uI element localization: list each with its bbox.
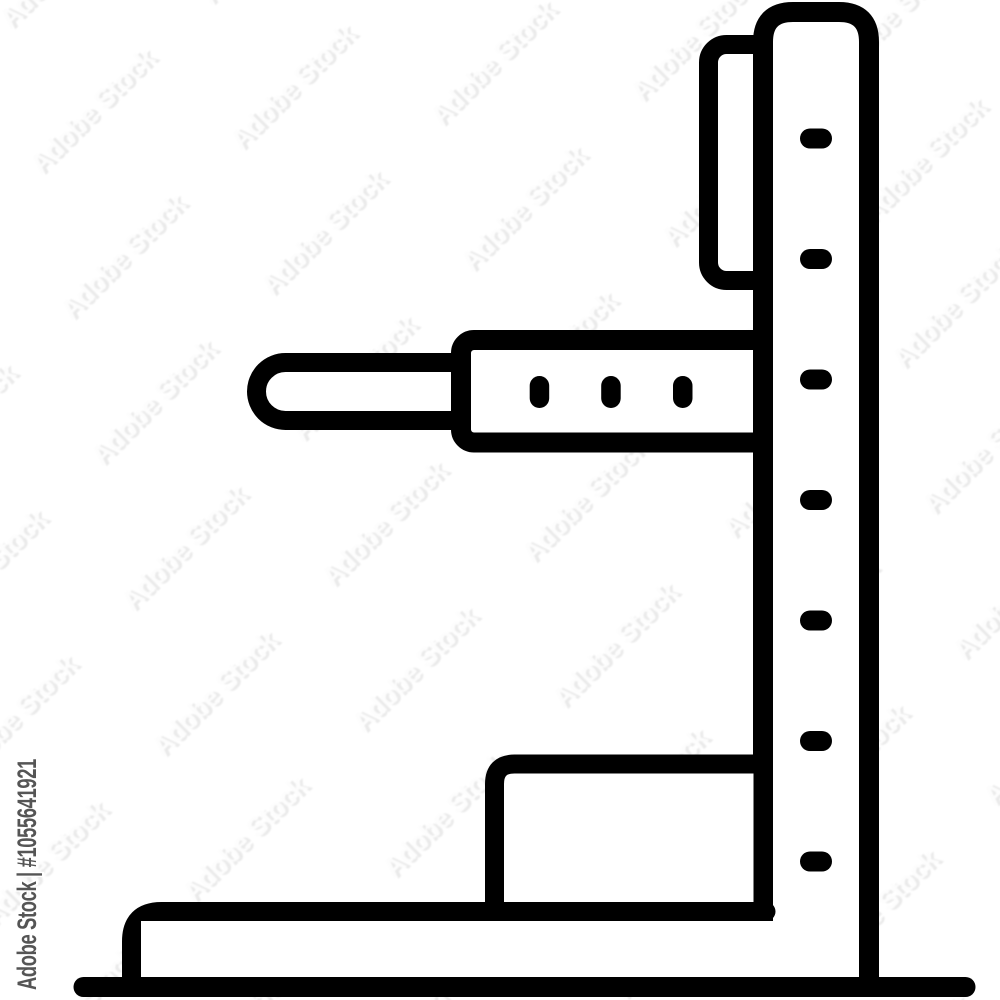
svg-text:Adobe Stock | #1055641921: Adobe Stock | #1055641921 — [12, 759, 42, 990]
